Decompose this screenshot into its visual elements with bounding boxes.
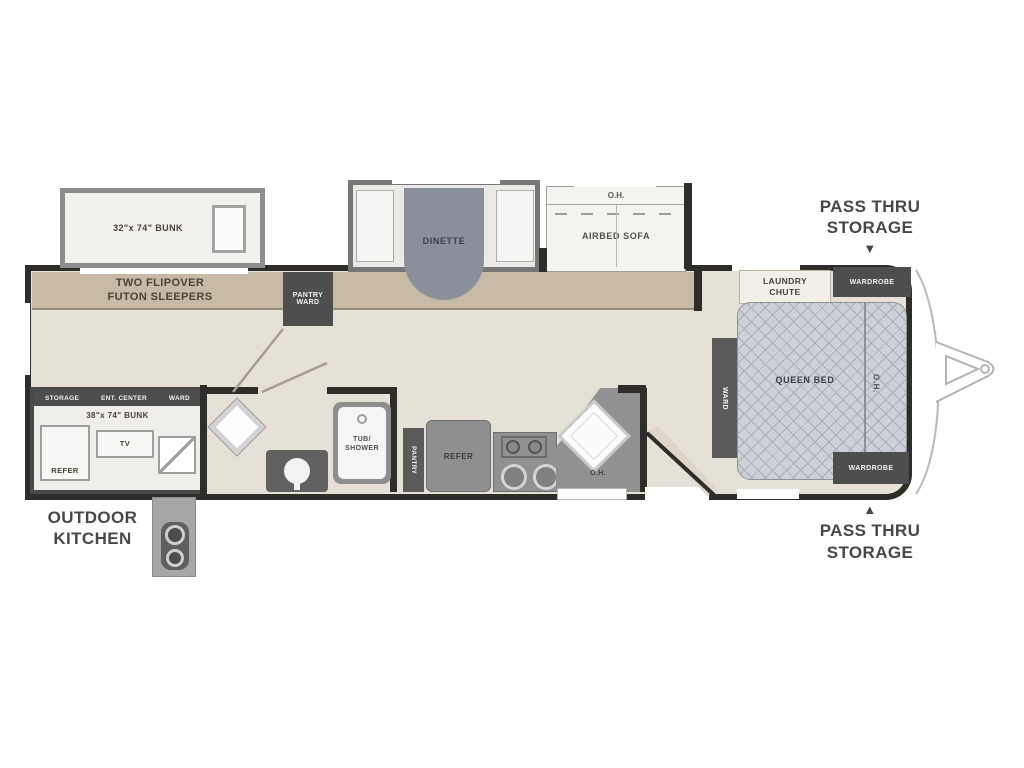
bedroom-ward-cabinet: WARD <box>712 338 737 458</box>
bunkhouse-bunk-label: 38"x 74" BUNK <box>34 411 201 421</box>
kitchen-pantry: PANTRY <box>403 428 424 492</box>
bunkhouse-refer-label: REFER <box>51 466 78 475</box>
futon-label: TWO FLIPOVER FUTON SLEEPERS <box>55 277 265 305</box>
toilet-bowl <box>284 458 310 484</box>
bunkhouse-refer: REFER <box>40 425 90 481</box>
tub-drain <box>357 414 367 424</box>
outdoor-kitchen-line1: OUTDOOR <box>25 507 160 528</box>
pass-thru-storage-bottom: ▲ PASS THRU STORAGE <box>795 502 945 563</box>
dinette-table: DINETTE <box>404 188 484 300</box>
kitchen-counter <box>493 432 557 492</box>
floorplan-canvas: TWO FLIPOVER FUTON SLEEPERS PANTRY WARD … <box>0 0 1024 768</box>
airbed-window <box>574 179 656 187</box>
tub-top-wall <box>327 387 397 394</box>
futon-label-line2: FUTON SLEEPERS <box>55 291 265 305</box>
tub-label-line2: SHOWER <box>333 445 391 454</box>
burner-1 <box>506 440 520 454</box>
kitchen-pantry-label: PANTRY <box>410 446 417 474</box>
bunk-pillow <box>212 205 246 253</box>
outdoor-kitchen-label: OUTDOOR KITCHEN <box>25 507 160 550</box>
range-burners <box>501 436 547 458</box>
outdoor-burner-1 <box>165 525 185 545</box>
dinette-bench-left <box>356 190 394 262</box>
toilet <box>266 450 328 492</box>
bunkhouse-tv-label: TV <box>120 439 130 448</box>
hitch-icon <box>936 342 994 402</box>
entry-step <box>557 488 627 500</box>
wardrobe-bottom-label: WARDROBE <box>849 465 894 472</box>
bunkhouse-sink <box>158 436 196 474</box>
outdoor-burner-2 <box>166 549 184 567</box>
outdoor-stove <box>161 522 189 570</box>
front-cap <box>916 270 939 494</box>
bedroom-ward-label: WARD <box>721 387 728 410</box>
kitchen-side-wall <box>640 388 647 492</box>
airbed-right-wall <box>684 183 692 269</box>
burner-2 <box>528 440 542 454</box>
pass-thru-bottom-line1: PASS THRU <box>795 520 945 541</box>
tub-shower: TUB/ SHOWER <box>333 402 391 484</box>
bunkhouse-cabinet-strip: STORAGE ENT. CENTER WARD <box>34 391 201 406</box>
bunkhouse-tv: TV <box>96 430 154 458</box>
laundry-line1: LAUNDRY <box>763 276 807 287</box>
kitchen-sink-inner <box>570 412 618 460</box>
wardrobe-top: WARDROBE <box>833 267 911 297</box>
kitchen-oh-label: O.H. <box>578 470 618 479</box>
bunk-slide-label: 32"x 74" BUNK <box>83 223 213 234</box>
bunkhouse-entcenter-label: ENT. CENTER <box>101 395 147 402</box>
pass-thru-storage-top: PASS THRU STORAGE ▼ <box>795 196 945 257</box>
entry-door-opening <box>645 487 709 502</box>
outdoor-kitchen-line2: KITCHEN <box>25 528 160 549</box>
bunkhouse-storage-label: STORAGE <box>45 395 79 402</box>
pantry-ward-line1: PANTRY <box>293 292 323 299</box>
bedroom-partition-wall <box>694 265 702 311</box>
rear-window <box>21 303 30 375</box>
laundry-chute: LAUNDRY CHUTE <box>739 270 831 304</box>
pass-thru-bottom-line2: STORAGE <box>795 542 945 563</box>
bath-left-wall <box>200 385 207 497</box>
tub-right-wall <box>390 387 397 492</box>
kitchen-refer: REFER <box>426 420 491 492</box>
airbed-oh-strip: O.H. <box>547 187 685 205</box>
bunk-slide: 32"x 74" BUNK <box>60 188 265 268</box>
bath-top-wall <box>200 387 258 394</box>
bedroom-bottom-window <box>737 489 799 499</box>
dinette-label: DINETTE <box>404 236 484 246</box>
tub-label: TUB/ SHOWER <box>333 436 391 454</box>
wardrobe-bottom: WARDROBE <box>833 452 909 484</box>
airbed-center-line <box>616 205 617 267</box>
double-sink <box>501 464 559 490</box>
bunkhouse-ward-label: WARD <box>169 395 190 402</box>
pantry-ward-line2: WARD <box>293 299 323 306</box>
bed-oh-label: O.H. <box>868 362 884 404</box>
sink-bowl-2 <box>533 464 559 490</box>
laundry-line2: CHUTE <box>763 287 807 298</box>
dinette-window <box>392 175 500 184</box>
arrow-up-icon: ▲ <box>795 502 945 518</box>
kitchen-refer-label: REFER <box>444 452 474 461</box>
dinette-bench-right <box>496 190 534 262</box>
tub-label-line1: TUB/ <box>333 436 391 445</box>
queen-bed-label: QUEEN BED <box>750 375 860 385</box>
airbed-oh-label: O.H. <box>608 191 624 200</box>
pass-thru-top-line1: PASS THRU <box>795 196 945 217</box>
airbed-left-stub <box>539 248 547 272</box>
futon-label-line1: TWO FLIPOVER <box>55 277 265 291</box>
toilet-base <box>294 482 300 490</box>
pantry-ward-cabinet: PANTRY WARD <box>283 272 333 326</box>
pass-thru-top-line2: STORAGE <box>795 217 945 238</box>
sink-bowl-1 <box>501 464 527 490</box>
wardrobe-top-label: WARDROBE <box>850 279 895 286</box>
arrow-down-icon: ▼ <box>795 241 945 257</box>
airbed-sofa: O.H. AIRBED SOFA <box>546 186 686 272</box>
